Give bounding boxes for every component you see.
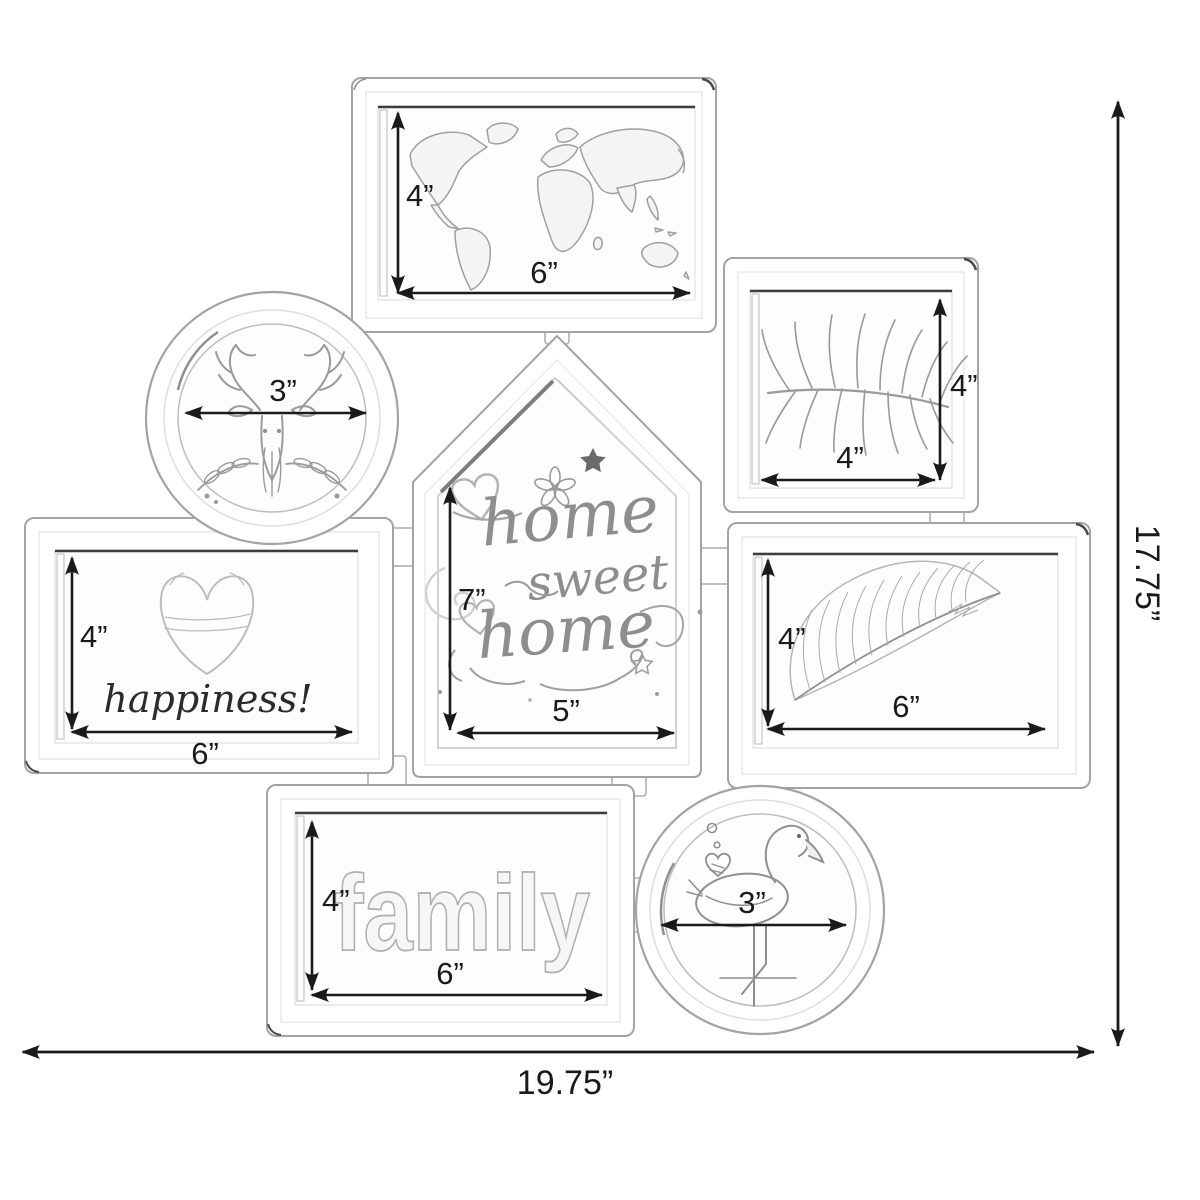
collage-frame-dimension-diagram: 4” 6” <box>0 0 1200 1200</box>
madagascar <box>594 237 603 249</box>
family-art: family <box>334 853 590 973</box>
world-height-label: 4” <box>406 178 434 213</box>
diagram-svg: 4” 6” <box>0 0 1200 1200</box>
frame-feather: 4” 6” <box>728 523 1090 788</box>
frame-deer-circle: 3” <box>146 292 398 544</box>
palm-height-label: 4” <box>950 368 978 403</box>
happiness-width-label: 6” <box>191 736 219 771</box>
flamingo-diameter-label: 3” <box>738 885 766 920</box>
house-height-label: 7” <box>458 582 486 617</box>
happiness-script-text: happiness! <box>103 677 312 721</box>
overall-height-label: 17.75” <box>1128 525 1166 621</box>
happiness-height-label: 4” <box>80 619 108 654</box>
frame-family: family 4” 6” <box>267 785 634 1036</box>
family-outline-text: family <box>334 853 590 973</box>
frame-happiness: happiness! 4” 6” <box>25 518 393 773</box>
feather-width-label: 6” <box>892 689 920 724</box>
frame-world-map: 4” 6” <box>352 78 716 332</box>
frame-palm-leaf: 4” 4” <box>724 258 978 512</box>
feather-height-label: 4” <box>778 621 806 656</box>
house-script-line3: home <box>474 588 657 674</box>
australia <box>642 243 678 267</box>
overall-width-label: 19.75” <box>517 1064 613 1102</box>
deer-diameter-label: 3” <box>269 373 297 408</box>
palm-width-label: 4” <box>836 440 864 475</box>
frame-flamingo-circle: 3” <box>636 786 884 1034</box>
family-width-label: 6” <box>436 956 464 991</box>
world-width-label: 6” <box>530 255 558 290</box>
family-height-label: 4” <box>322 883 350 918</box>
frame-house: home sweet home 7” 5” <box>413 336 703 777</box>
house-width-label: 5” <box>552 693 580 728</box>
